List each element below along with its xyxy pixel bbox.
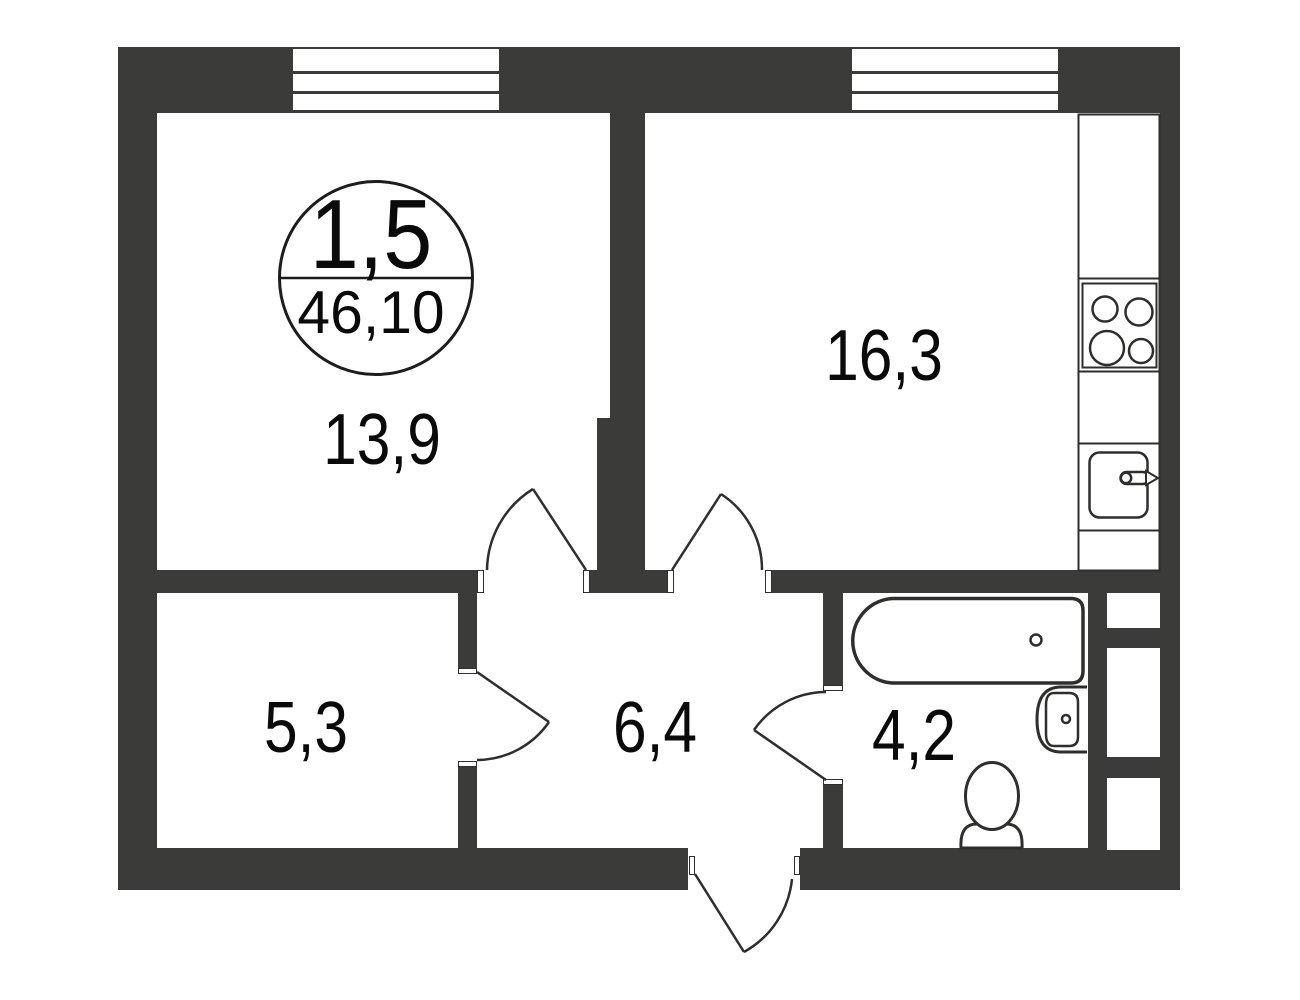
- wash-basin-icon: [1037, 687, 1087, 752]
- toilet-icon: [961, 763, 1022, 849]
- room-area-storage: 5,3: [264, 692, 348, 764]
- floor-plan-canvas: 1,5 46,10 13,9 16,3 5,3 6,4 4,2: [0, 0, 1300, 1000]
- stove-icon: [1083, 284, 1157, 368]
- wall-living-kitchen-upper: [610, 113, 645, 418]
- stamp-room-count: 1,5: [310, 185, 433, 283]
- wall-living-kitchen-lower: [597, 418, 645, 593]
- wall-horizontal-left: [157, 570, 477, 593]
- kitchen-counter-icon: [1079, 115, 1160, 571]
- door-living-room: [487, 489, 586, 570]
- door-kitchen: [672, 494, 762, 570]
- room-area-living-room: 13,9: [323, 404, 441, 476]
- window-kitchen: [852, 47, 1058, 113]
- wall-exterior-right: [1160, 47, 1180, 890]
- wall-bath-hall-lower: [823, 785, 843, 850]
- wall-exterior-left: [118, 47, 157, 890]
- window-living-room: [293, 47, 499, 113]
- door-jamb: [458, 668, 477, 674]
- door-entrance: [695, 874, 792, 952]
- door-jamb: [794, 856, 800, 875]
- room-area-hallway: 6,4: [613, 692, 697, 764]
- ventilation-shaft-niche: [1107, 648, 1160, 757]
- room-area-bathroom: 4,2: [872, 700, 956, 772]
- window-mullion: [852, 71, 1058, 74]
- door-jamb: [689, 856, 695, 875]
- door-jamb: [823, 685, 843, 691]
- door-jamb: [477, 570, 484, 593]
- stamp-total-area: 46,10: [297, 283, 444, 343]
- window-mullion: [852, 91, 1058, 94]
- door-jamb: [765, 570, 772, 593]
- wall-storage-hall-upper: [458, 593, 477, 668]
- door-storage: [477, 672, 549, 760]
- wall-storage-hall-lower: [458, 767, 477, 850]
- door-jamb: [823, 779, 843, 785]
- wall-horizontal-right: [772, 570, 1180, 593]
- wall-exterior-bottom-right: [800, 848, 1180, 890]
- door-jamb: [583, 570, 590, 593]
- wall-bath-hall-upper: [823, 593, 843, 685]
- bathtub-icon: [853, 599, 1083, 684]
- window-mullion: [293, 71, 499, 74]
- kitchen-sink-icon: [1090, 453, 1159, 518]
- door-bathroom: [754, 692, 826, 780]
- room-area-kitchen: 16,3: [825, 320, 943, 392]
- window-mullion: [293, 91, 499, 94]
- wall-exterior-bottom-left: [118, 848, 688, 890]
- ventilation-shaft-niche: [1107, 593, 1160, 628]
- wall-hall-t-bar: [590, 570, 668, 593]
- ventilation-shaft-niche: [1107, 778, 1160, 850]
- door-jamb: [667, 570, 674, 593]
- door-jamb: [458, 761, 477, 767]
